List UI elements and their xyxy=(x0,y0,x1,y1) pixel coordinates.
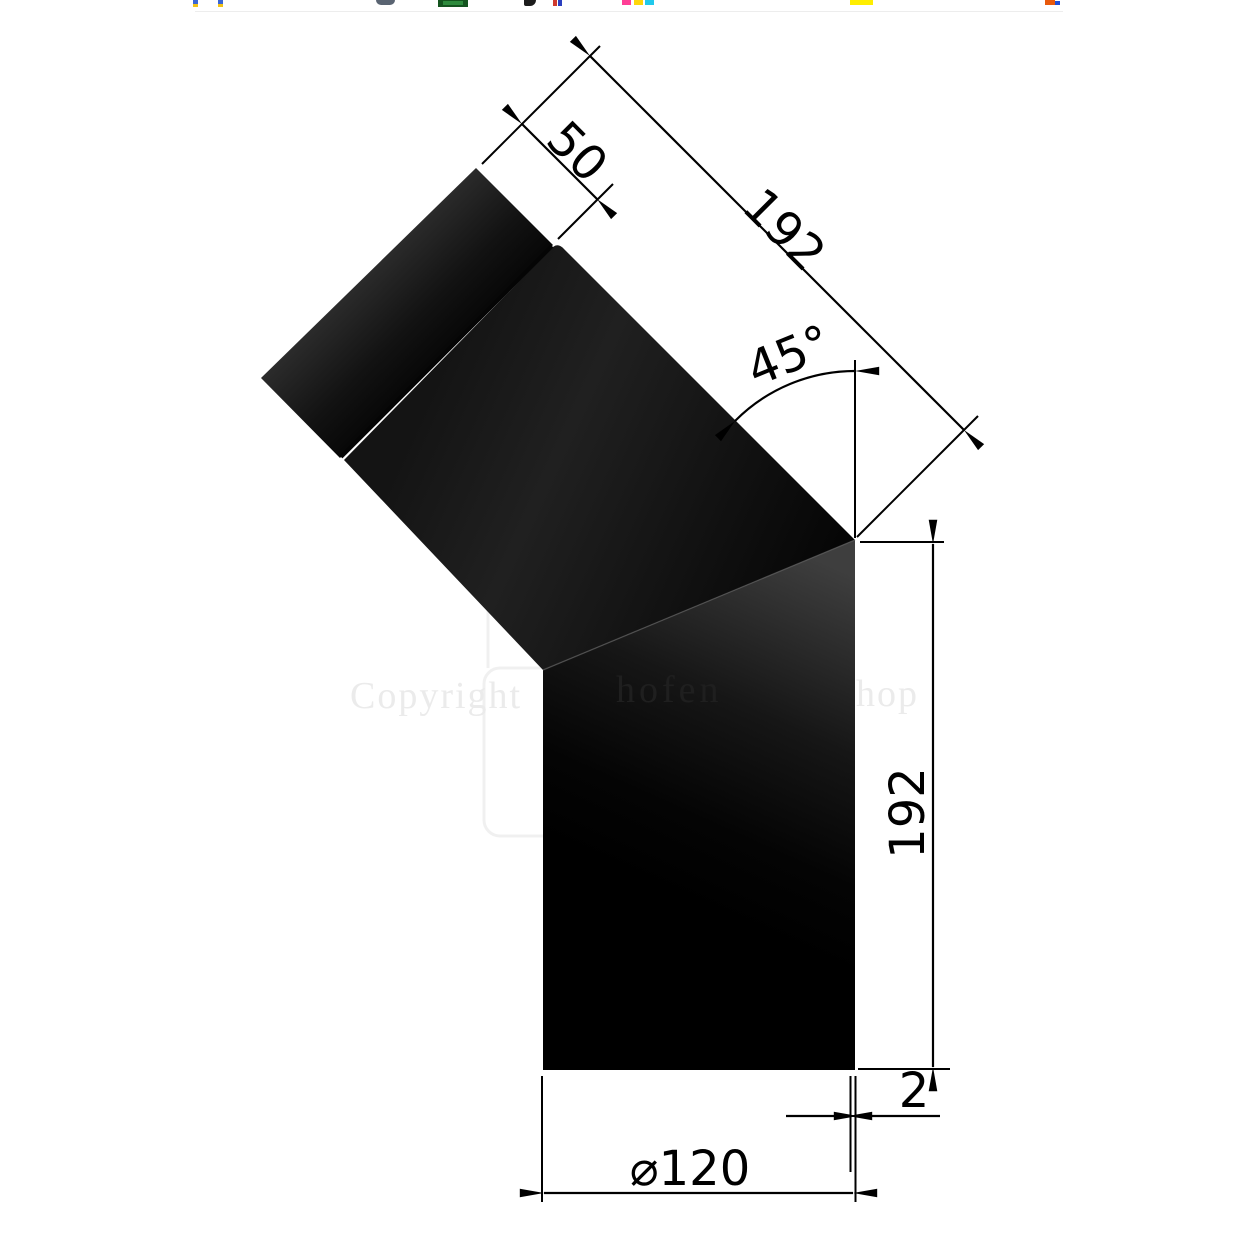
extension-line-collar-seam xyxy=(558,184,613,239)
dim-label-upper-192: 192 xyxy=(732,178,836,282)
dim-label-wall-2: 2 xyxy=(899,1063,930,1119)
product-drawing-page: Copyright hop hofen xyxy=(0,0,1250,1250)
watermark-text-right: hop xyxy=(856,673,919,715)
watermark-text-left: Copyright xyxy=(350,675,522,717)
watermark-text-middle: hofen xyxy=(616,669,723,711)
dim-label-diameter-120: ⌀120 xyxy=(630,1141,751,1197)
dim-label-collar-50: 50 xyxy=(536,111,619,194)
dim-label-angle-45: 45° xyxy=(739,314,839,398)
extension-line-corner-diagonal xyxy=(857,416,978,537)
dim-label-lower-192: 192 xyxy=(880,767,936,859)
stovepipe-elbow-technical-drawing: Copyright hop hofen xyxy=(0,0,1250,1250)
elbow-pipe: hofen xyxy=(261,168,855,1070)
